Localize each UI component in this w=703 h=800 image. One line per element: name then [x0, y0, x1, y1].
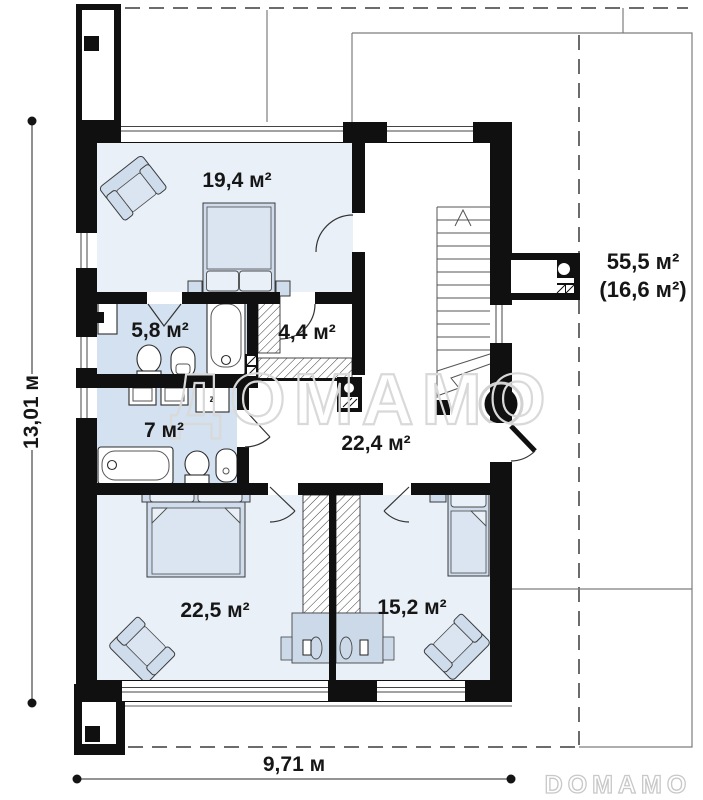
dimension-height-label: 13,01 м — [20, 375, 43, 449]
pillow — [240, 271, 272, 291]
window — [121, 122, 343, 142]
window — [76, 337, 97, 368]
floor-plan-page: z — [0, 0, 703, 800]
desk-monitor — [303, 640, 311, 655]
dimension-width-label: 9,71 м — [263, 753, 325, 776]
attic-area-usable: (16,6 м²) — [599, 277, 686, 302]
water-heater — [216, 449, 237, 482]
window — [387, 122, 473, 142]
stairs-up-arrow — [455, 210, 471, 226]
room-label-bathroom-small: 5,8 м² — [131, 319, 189, 342]
toilet — [185, 451, 209, 477]
room-label-bathroom-main: 7 м² — [144, 419, 184, 442]
desk-chair — [340, 637, 352, 659]
floor-plan-drawing: z — [0, 0, 703, 800]
window — [76, 388, 97, 418]
desk-monitor — [360, 640, 368, 655]
room-label-bedroom-top: 19,4 м² — [202, 169, 271, 192]
desk-chair — [310, 637, 322, 659]
toilet — [137, 345, 161, 373]
window — [122, 681, 328, 701]
attic-area-total: 55,5 м² — [607, 249, 680, 274]
room-label-hallway: 22,4 м² — [341, 432, 410, 455]
window — [377, 681, 465, 701]
room-label-bedroom-right: 15,2 м² — [377, 596, 446, 619]
watermark: ДОМАМО — [170, 360, 553, 440]
brand-logo: DOMAMO — [545, 771, 692, 799]
pillow — [207, 271, 239, 291]
room-label-bedroom-left: 22,5 м² — [180, 599, 249, 622]
window — [76, 233, 97, 268]
room-label-wardrobe: 4,4 м² — [278, 321, 336, 344]
window — [490, 305, 512, 343]
